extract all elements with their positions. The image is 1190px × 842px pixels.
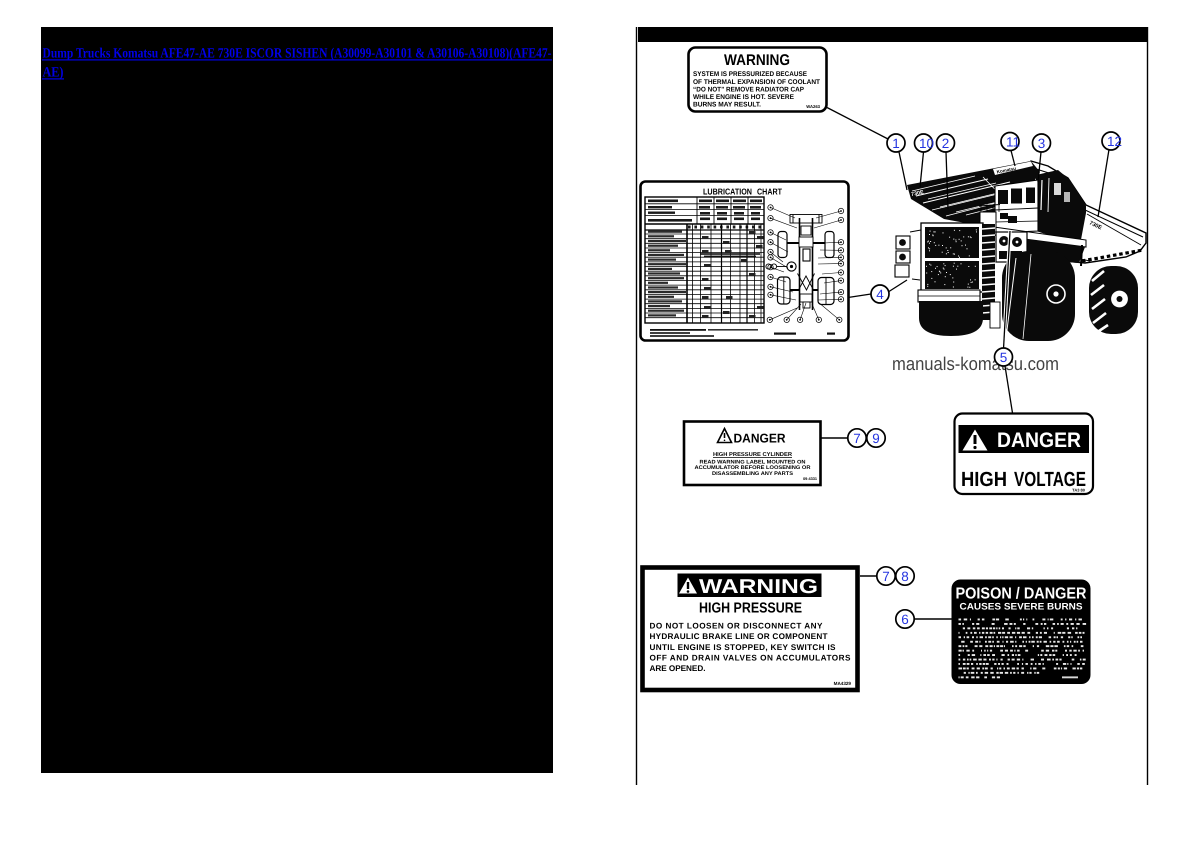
svg-text:11: 11 — [1006, 134, 1020, 149]
svg-text:1: 1 — [892, 136, 900, 151]
svg-text:10: 10 — [919, 136, 934, 151]
svg-text:MA4329: MA4329 — [834, 681, 852, 686]
svg-text:CHART: CHART — [757, 187, 783, 197]
svg-text:CAUSES SEVERE BURNS: CAUSES SEVERE BURNS — [960, 602, 1083, 613]
svg-text:7: 7 — [882, 569, 890, 584]
svg-text:2: 2 — [942, 136, 950, 151]
svg-text:6: 6 — [901, 612, 909, 627]
svg-text:8: 8 — [901, 569, 909, 584]
svg-text:3: 3 — [1038, 136, 1046, 151]
svg-text:TA3 80: TA3 80 — [1072, 488, 1086, 493]
svg-text:HIGH PRESSURE: HIGH PRESSURE — [699, 601, 802, 617]
svg-text:WARNING: WARNING — [699, 576, 818, 598]
svg-text:“DO NOT” REMOVE RADIATOR CAP: “DO NOT” REMOVE RADIATOR CAP — [693, 86, 804, 93]
svg-text:POISON / DANGER: POISON / DANGER — [956, 586, 1087, 603]
svg-text:UNTIL ENGINE IS STOPPED, KEY S: UNTIL ENGINE IS STOPPED, KEY SWITCH IS — [650, 643, 837, 652]
svg-text:LUBRICATION: LUBRICATION — [703, 187, 752, 197]
svg-text:12: 12 — [1107, 134, 1122, 149]
svg-text:DISASSEMBLING ANY PARTS: DISASSEMBLING ANY PARTS — [712, 471, 794, 477]
svg-text:7: 7 — [853, 431, 861, 446]
svg-text:BURNS MAY RESULT.: BURNS MAY RESULT. — [693, 102, 761, 109]
svg-text:9: 9 — [872, 431, 880, 446]
svg-text:WARNING: WARNING — [724, 52, 790, 69]
svg-text:AE): AE) — [43, 65, 64, 81]
svg-text:5: 5 — [1000, 350, 1008, 365]
svg-text:09-4331: 09-4331 — [803, 477, 817, 481]
svg-text:HIGH: HIGH — [961, 468, 1007, 491]
svg-text:Dump Trucks Komatsu AFE47-AE 7: Dump Trucks Komatsu AFE47-AE 730E ISCOR … — [43, 46, 552, 62]
svg-text:HYDRAULIC BRAKE LINE OR COMPON: HYDRAULIC BRAKE LINE OR COMPONENT — [650, 632, 828, 641]
svg-text:SYSTEM IS PRESSURIZED BECAUSE: SYSTEM IS PRESSURIZED BECAUSE — [693, 71, 807, 78]
svg-text:WA263: WA263 — [806, 104, 820, 109]
svg-text:WHILE ENGINE IS HOT. SEVERE: WHILE ENGINE IS HOT. SEVERE — [693, 94, 794, 101]
svg-text:ARE OPENED.: ARE OPENED. — [650, 664, 706, 673]
svg-text:OFF AND DRAIN VALVES ON ACCUMU: OFF AND DRAIN VALVES ON ACCUMULATORS — [650, 653, 852, 662]
svg-text:OF THERMAL EXPANSION OF COOLAN: OF THERMAL EXPANSION OF COOLANT — [693, 79, 821, 86]
svg-text:manuals-komatsu.com: manuals-komatsu.com — [892, 353, 1059, 374]
svg-text:DANGER: DANGER — [734, 431, 786, 446]
svg-text:DO NOT LOOSEN OR DISCONNECT AN: DO NOT LOOSEN OR DISCONNECT ANY — [650, 622, 824, 631]
svg-text:4: 4 — [876, 287, 884, 302]
svg-text:DANGER: DANGER — [997, 429, 1081, 452]
